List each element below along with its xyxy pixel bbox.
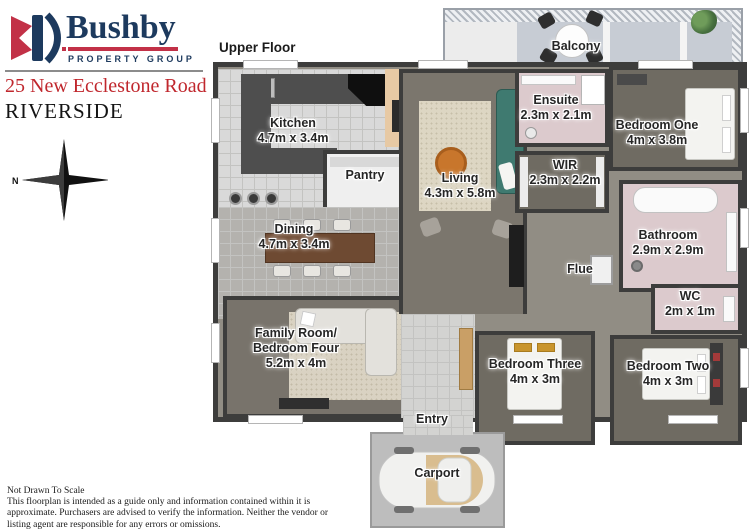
window — [740, 88, 749, 133]
compass-icon: N — [12, 135, 108, 225]
room-label-flue: Flue — [567, 262, 593, 277]
dining-chair — [333, 265, 351, 277]
room-name: Family Room/ — [253, 326, 339, 341]
room-entry-hall — [401, 314, 475, 418]
floorplan-page: Bushby PROPERTY GROUP 25 New Ecclestone … — [0, 0, 750, 529]
window — [211, 323, 220, 363]
bushby-logo: Bushby PROPERTY GROUP — [8, 10, 208, 68]
toilet — [525, 127, 537, 139]
room-dims: 4m x 3.8m — [616, 133, 699, 148]
toilet — [723, 296, 735, 322]
listing-suburb: RIVERSIDE — [5, 99, 124, 124]
room-name: WIR — [530, 158, 601, 173]
room-name: Carport — [414, 466, 459, 481]
bar-stool — [265, 192, 278, 205]
dining-chair — [273, 265, 291, 277]
window — [668, 415, 718, 424]
window — [513, 415, 563, 424]
room-label-pantry: Pantry — [346, 168, 385, 183]
vanity — [521, 75, 576, 85]
room-dims: 4.3m x 5.8m — [425, 186, 496, 201]
flue-box — [590, 255, 613, 285]
bar-stool — [229, 192, 242, 205]
window — [638, 60, 693, 69]
wardrobe-shelf — [520, 157, 528, 207]
footer-disclaimer: Not Drawn To Scale This floorplan is int… — [7, 486, 347, 531]
room-bedroom-three — [475, 331, 595, 445]
window — [248, 415, 303, 424]
room-name: Bathroom — [633, 228, 704, 243]
room-label-living: Living 4.3m x 5.8m — [425, 171, 496, 201]
room-name: Kitchen — [258, 116, 329, 131]
window — [211, 98, 220, 143]
vanity — [726, 212, 737, 272]
window — [740, 348, 749, 388]
room-name: Entry — [416, 412, 448, 427]
room-label-bathroom: Bathroom 2.9m x 2.9m — [633, 228, 704, 258]
bedside-decor — [713, 379, 720, 387]
room-dims: 2.9m x 2.9m — [633, 243, 704, 258]
floorplan: Kitchen 4.7m x 3.4m Pantry Dining 4.7m x… — [213, 8, 750, 529]
room-name: Pantry — [346, 168, 385, 183]
bushby-logo-mark-icon — [8, 11, 62, 65]
balcony-partition — [680, 22, 687, 64]
room-label-entry: Entry — [416, 412, 448, 427]
room-label-wc: WC 2m x 1m — [665, 289, 715, 319]
logo-text-block: Bushby PROPERTY GROUP — [66, 10, 195, 64]
room-dims: 2m x 1m — [665, 304, 715, 319]
wardrobe — [617, 74, 647, 85]
room-name: Bedroom One — [616, 118, 699, 133]
room-dims: 4m x 3m — [627, 374, 709, 389]
brand-name: Bushby — [66, 10, 195, 46]
room-label-ensuite: Ensuite 2.3m x 2.1m — [521, 93, 592, 123]
room-dims: 4.7m x 3.4m — [259, 237, 330, 252]
hall-cabinet — [459, 328, 473, 390]
tv-unit — [392, 100, 399, 132]
room-label-bedroom-three: Bedroom Three 4m x 3m — [489, 357, 581, 387]
room-label-carport: Carport — [414, 466, 459, 481]
room-name: Flue — [567, 262, 593, 277]
car-icon — [374, 442, 501, 520]
bar-stool — [247, 192, 260, 205]
balcony-partition — [603, 22, 610, 64]
room-label-wir: WIR 2.3m x 2.2m — [530, 158, 601, 188]
cushion — [300, 311, 317, 328]
piano — [509, 225, 524, 287]
room-name: Dining — [259, 222, 330, 237]
bathtub — [633, 187, 718, 213]
room-dims: 2.3m x 2.1m — [521, 108, 592, 123]
room-label-bedroom-two: Bedroom Two 4m x 3m — [627, 359, 709, 389]
listing-address: 25 New Ecclestone Road — [5, 75, 207, 98]
room-bedroom-two — [610, 335, 742, 445]
logo-red-rule — [68, 47, 178, 51]
header-divider — [5, 70, 203, 72]
window — [211, 218, 220, 263]
room-label-family-room: Family Room/ Bedroom Four 5.2m x 4m — [253, 326, 339, 371]
sofa-chaise — [365, 308, 397, 376]
scale-note: Not Drawn To Scale — [7, 486, 347, 497]
window — [418, 60, 468, 69]
toilet — [631, 260, 643, 272]
room-label-balcony: Balcony — [552, 39, 601, 54]
dining-chair — [333, 219, 351, 231]
disclaimer-text: This floorplan is intended as a guide on… — [7, 497, 347, 531]
room-name: Balcony — [552, 39, 601, 54]
room-name: WC — [665, 289, 715, 304]
room-label-kitchen: Kitchen 4.7m x 3.4m — [258, 116, 329, 146]
room-name: Bedroom Three — [489, 357, 581, 372]
window — [740, 208, 749, 248]
room-dims: 2.3m x 2.2m — [530, 173, 601, 188]
tv-cabinet — [279, 398, 329, 409]
room-name: Bedroom Four — [253, 341, 339, 356]
room-label-dining: Dining 4.7m x 3.4m — [259, 222, 330, 252]
room-name: Bedroom Two — [627, 359, 709, 374]
room-dims: 4.7m x 3.4m — [258, 131, 329, 146]
armchair — [419, 216, 442, 238]
room-dims: 5.2m x 4m — [253, 356, 339, 371]
roof-section — [445, 22, 517, 64]
compass-north-label: N — [12, 176, 19, 186]
balcony-railing-right — [732, 10, 741, 62]
bedside-decor — [713, 353, 720, 361]
room-label-bedroom-one: Bedroom One 4m x 3.8m — [616, 118, 699, 148]
room-name: Ensuite — [521, 93, 592, 108]
room-name: Living — [425, 171, 496, 186]
window — [243, 60, 298, 69]
room-dims: 4m x 3m — [489, 372, 581, 387]
floor-label: Upper Floor — [219, 40, 296, 55]
dining-chair — [303, 265, 321, 277]
brand-tagline: PROPERTY GROUP — [68, 54, 195, 64]
